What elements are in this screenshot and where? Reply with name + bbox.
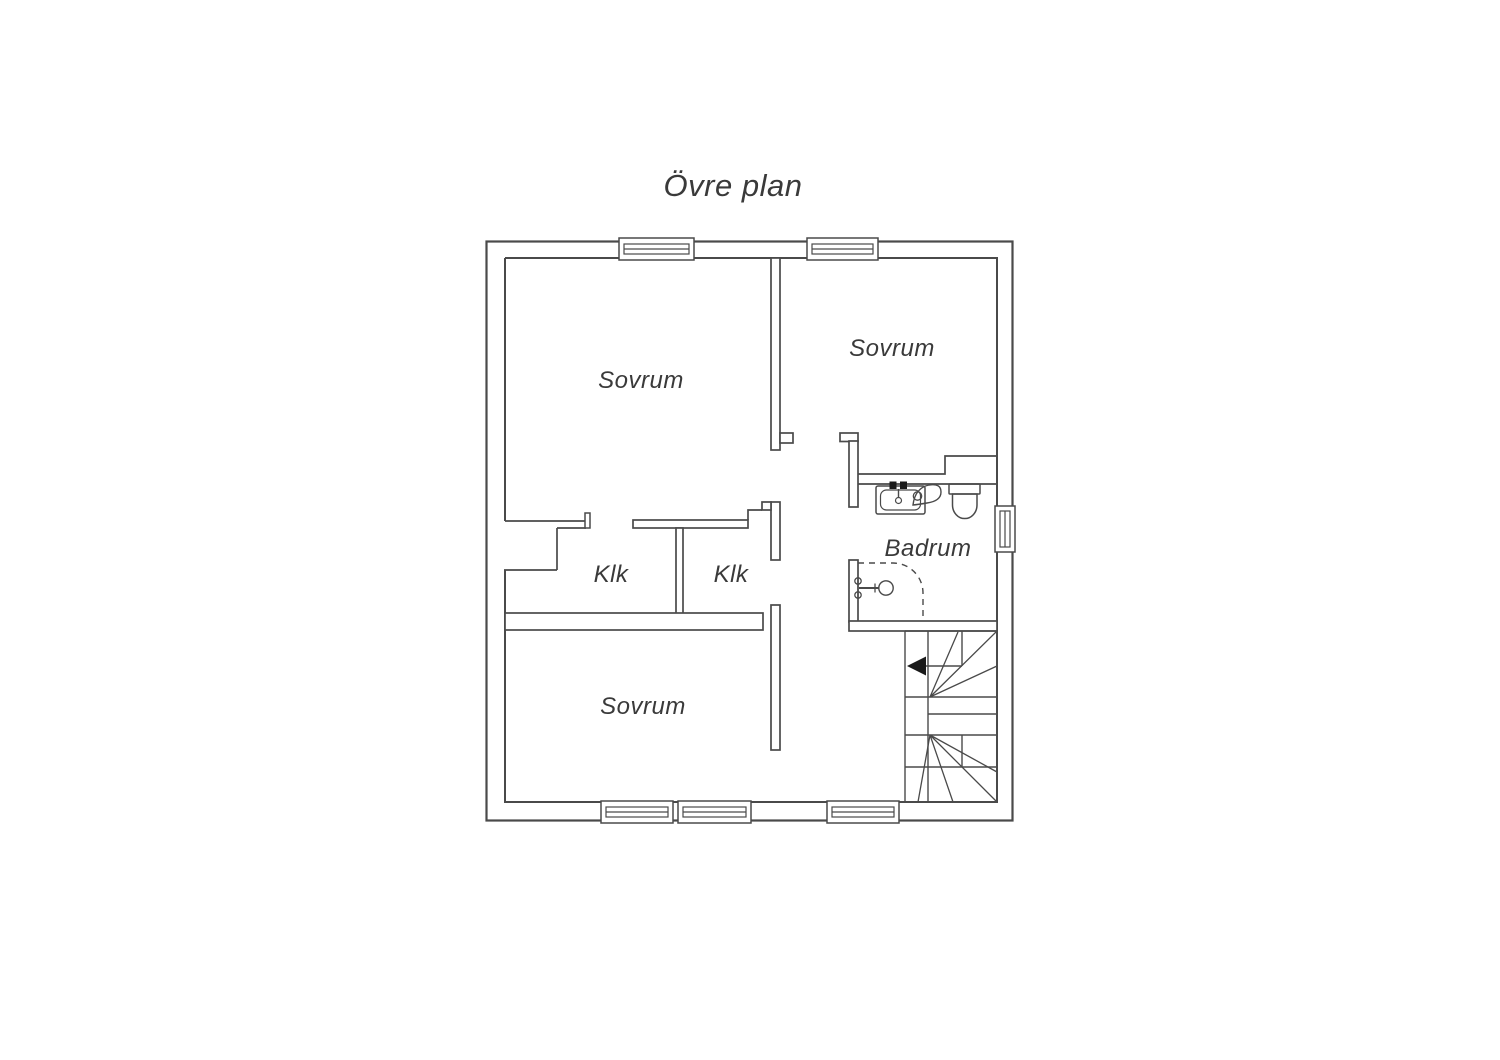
sink-symbol [876,482,925,515]
exterior-walls [487,242,1013,821]
faucet-symbol [913,485,941,505]
floor-plan-page: Övre plan [0,0,1500,1060]
shower-symbol [855,563,923,621]
room-label-badrum: Badrum [884,535,971,562]
room-label-sovrum-top-right: Sovrum [849,335,935,362]
window-symbol [619,238,694,260]
window-symbol [995,506,1015,552]
room-label-klk-right: Klk [714,561,750,588]
window-symbol [807,238,878,260]
toilet-symbol [949,484,980,519]
floor-plan-drawing: Övre plan [0,0,1500,1060]
room-label-sovrum-top-left: Sovrum [598,367,684,394]
window-symbol [601,801,673,823]
staircase [905,631,997,802]
room-label-sovrum-bottom: Sovrum [600,693,686,720]
room-label-klk-left: Klk [594,561,630,588]
window-symbol [827,801,899,823]
stair-direction-arrow-icon [907,657,926,676]
window-symbol [678,801,751,823]
page-title: Övre plan [664,168,803,203]
